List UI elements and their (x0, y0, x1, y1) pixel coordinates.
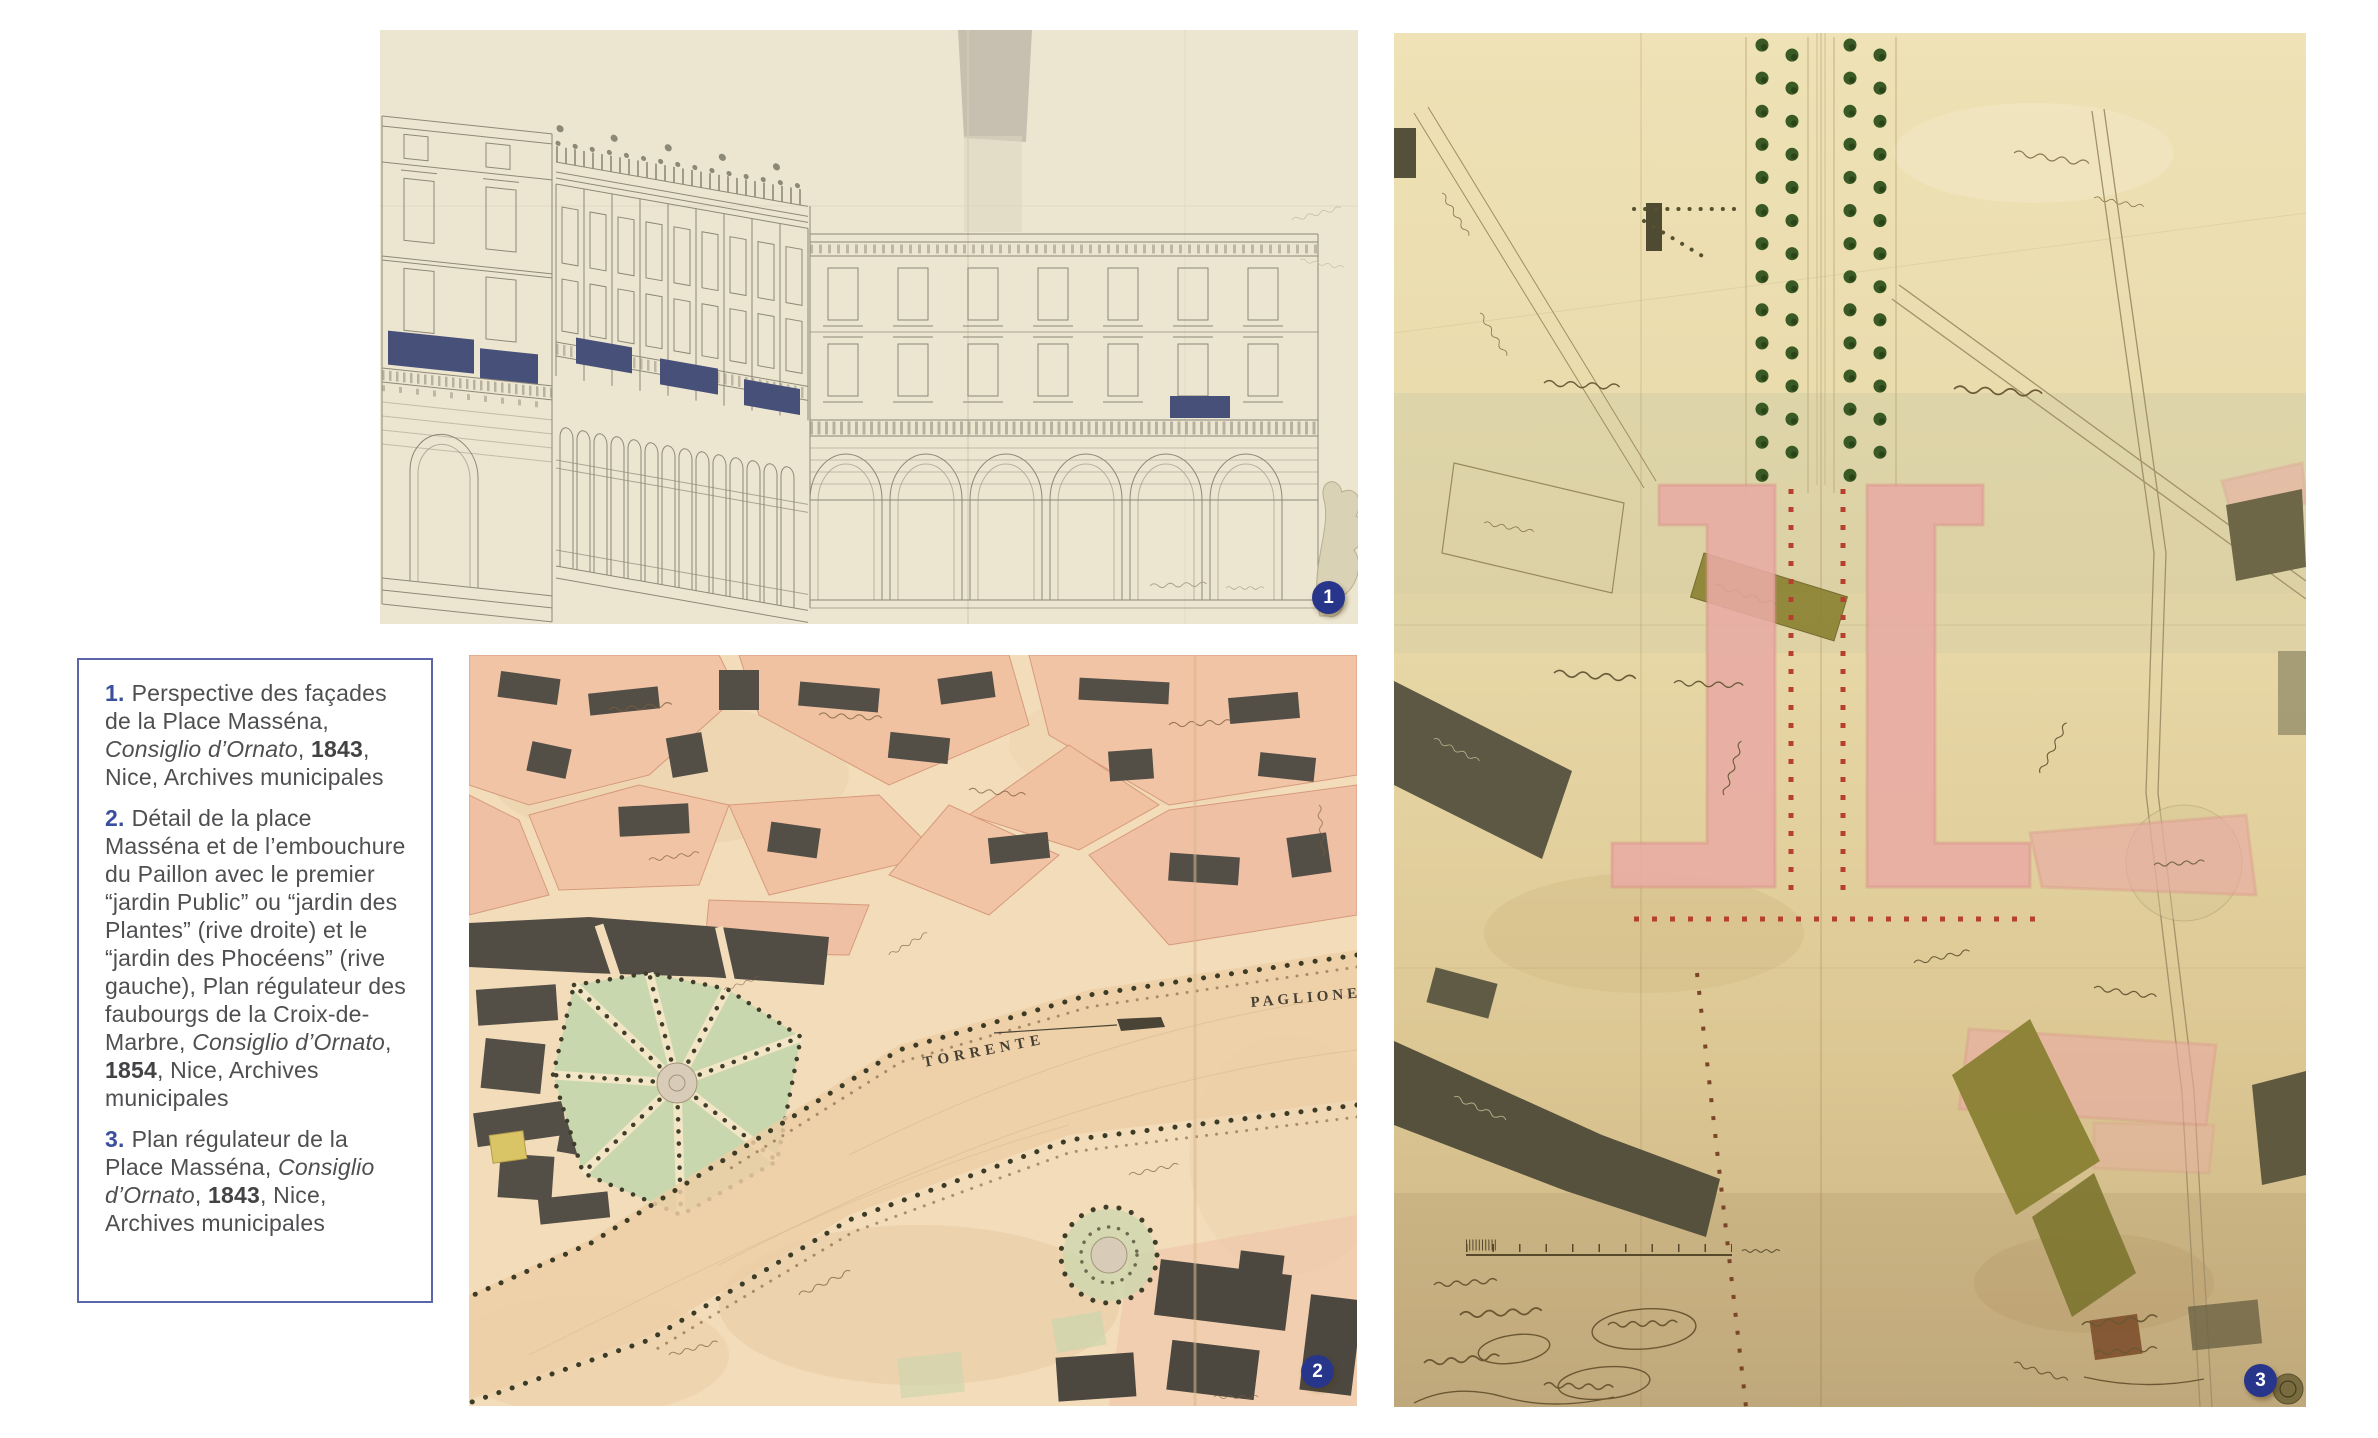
map-1854-art: TORRENTE PAGLIONE (469, 655, 1357, 1406)
figure-2-map-detail: TORRENTE PAGLIONE (469, 655, 1357, 1406)
figure-1-number: 1 (1323, 587, 1334, 608)
paper-stain (958, 30, 1032, 142)
caption-3-year: 1843 (208, 1182, 260, 1208)
figure-2-badge: 2 (1301, 1355, 1334, 1388)
caption-item-1: 1.Perspective des façades de la Place Ma… (105, 679, 409, 791)
plan-1843-art (1394, 33, 2306, 1407)
figure-3-number: 3 (2255, 1370, 2266, 1391)
caption-3-number: 3. (105, 1126, 125, 1152)
caption-2-text: Détail de la place Masséna et de l’embou… (105, 805, 406, 1055)
wax-seal (2273, 1374, 2303, 1404)
figure-1-facade-drawing: 1 (380, 30, 1358, 624)
figure-1-badge: 1 (1312, 581, 1345, 614)
caption-item-3: 3.Plan régulateur de la Place Masséna, C… (105, 1125, 409, 1237)
caption-2-source-title: Consiglio d’Ornato (192, 1029, 385, 1055)
caption-1-year: 1843 (311, 736, 363, 762)
caption-1-text: Perspective des façades de la Place Mass… (105, 680, 387, 734)
caption-1-number: 1. (105, 680, 125, 706)
figure-2-number: 2 (1312, 1361, 1323, 1382)
caption-2-year: 1854 (105, 1057, 157, 1083)
caption-item-2: 2.Détail de la place Masséna et de l’emb… (105, 804, 409, 1112)
page: 1 1.Perspective des façades de la Place … (0, 0, 2378, 1438)
figure-3-regulating-plan: 3 (1394, 33, 2306, 1407)
figure-3-badge: 3 (2244, 1364, 2277, 1397)
caption-2-number: 2. (105, 805, 125, 831)
caption-1-source-title: Consiglio d’Ornato (105, 736, 298, 762)
yellow-building (489, 1131, 527, 1163)
caption-panel: 1.Perspective des façades de la Place Ma… (77, 658, 433, 1303)
facade-drawing-art (380, 30, 1358, 624)
